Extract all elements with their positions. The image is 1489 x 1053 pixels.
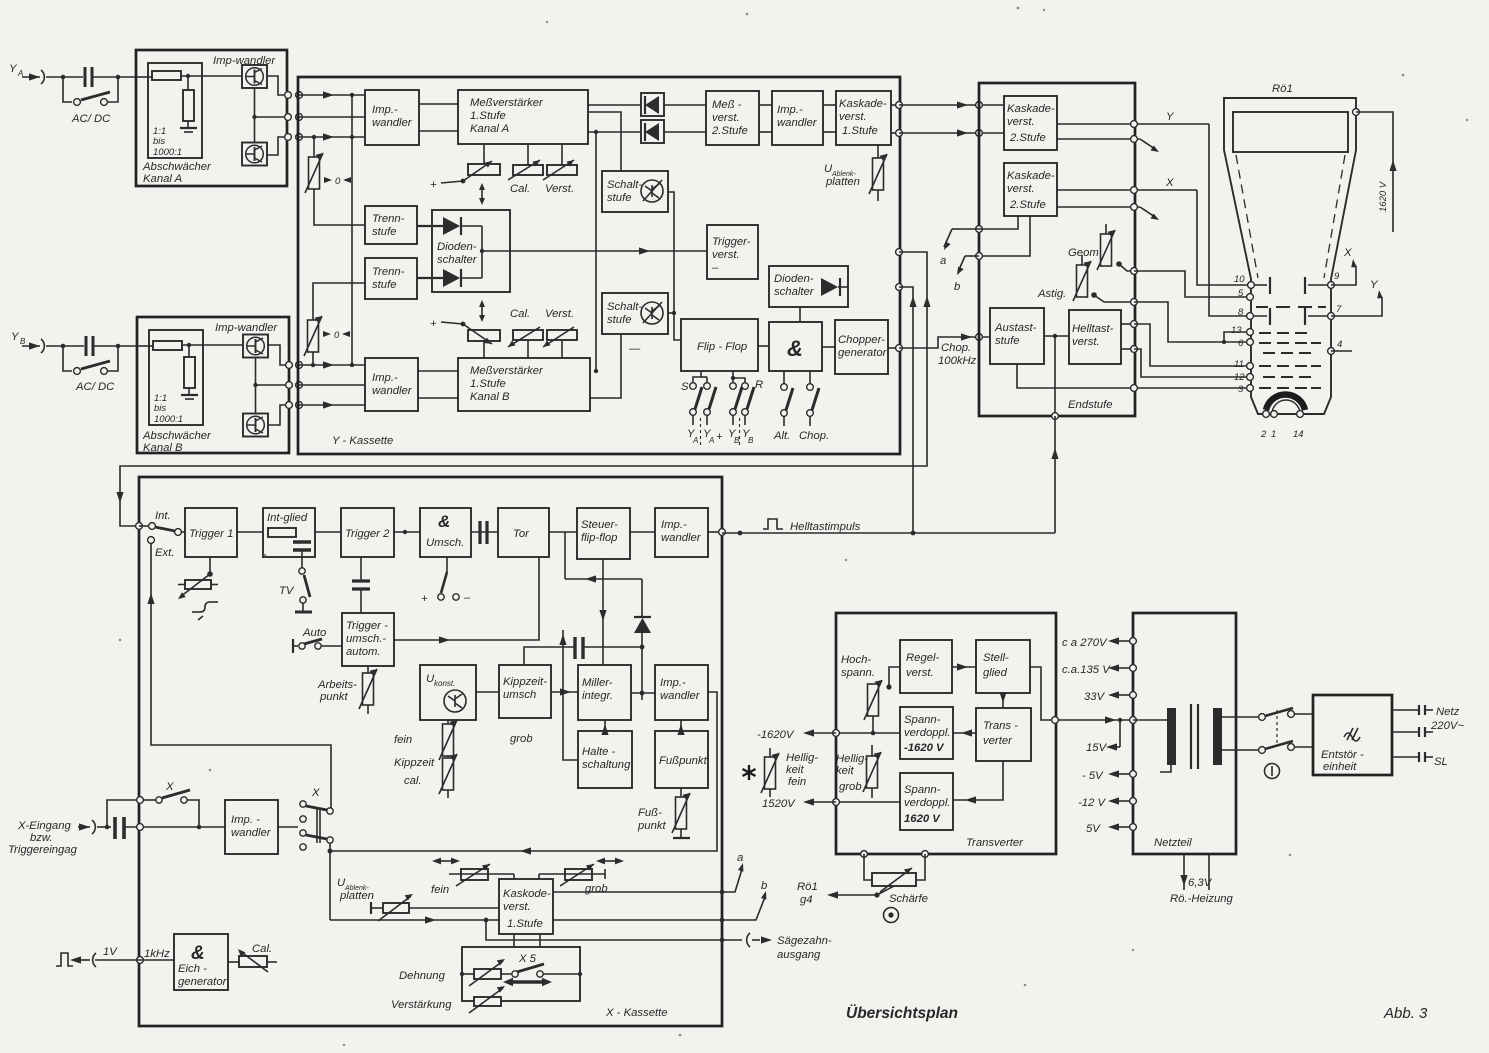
svg-text:Spann-: Spann- [904,714,941,726]
svg-text:8: 8 [1238,307,1244,318]
svg-text:10: 10 [1234,274,1245,285]
svg-text:wandler: wandler [777,117,818,129]
svg-text:punkt: punkt [319,691,348,703]
svg-text:X-Eingang: X-Eingang [17,820,71,832]
svg-text:verst.: verst. [1007,183,1035,195]
svg-text:grob: grob [839,781,862,793]
svg-text:integr.: integr. [582,690,613,702]
svg-text:–: – [711,262,719,274]
svg-text:Trigger 1: Trigger 1 [189,528,233,540]
svg-text:bis: bis [154,403,166,414]
svg-text:Hellig-: Hellig- [786,752,818,764]
svg-text:Steuer-: Steuer- [581,519,618,531]
svg-text:verst.: verst. [1072,336,1100,348]
svg-text:Cal.: Cal. [252,943,272,955]
svg-text:X: X [165,781,174,793]
svg-text:Dehnung: Dehnung [399,970,446,982]
svg-text:5V: 5V [1086,823,1101,835]
svg-text:Abschwächer: Abschwächer [142,430,212,442]
svg-text:Umsch.: Umsch. [426,537,464,549]
svg-text:Dioden-: Dioden- [774,273,814,285]
svg-text:Imp.-: Imp.- [372,104,398,116]
svg-text:Helltastimpuls: Helltastimpuls [790,521,861,533]
svg-text:g4: g4 [800,894,813,906]
svg-text:Alt.: Alt. [773,430,790,442]
svg-text:Kaskade-: Kaskade- [839,98,887,110]
svg-text:6,3V: 6,3V [1188,877,1213,889]
svg-text:flip-flop: flip-flop [581,532,617,544]
svg-text:Rö.-Heizung: Rö.-Heizung [1170,893,1234,905]
svg-text:verdoppl.: verdoppl. [904,797,950,809]
svg-text:Netz: Netz [1436,706,1460,718]
svg-text:verst.: verst. [906,667,934,679]
svg-text:1620 V: 1620 V [1378,180,1389,212]
svg-text:glied: glied [983,667,1008,679]
svg-text:Chop.: Chop. [799,430,829,442]
svg-text:c a 270V: c a 270V [1062,637,1108,649]
svg-text:SL: SL [1434,756,1448,768]
svg-text:verter: verter [983,735,1013,747]
svg-text:platten: platten [825,176,860,188]
svg-text:Helltast-: Helltast- [1072,323,1114,335]
svg-text:X 5: X 5 [518,953,537,965]
svg-text:1520V: 1520V [762,798,796,810]
svg-text:Übersichtsplan: Übersichtsplan [846,1005,958,1022]
svg-text:&: & [787,336,803,361]
svg-text:Auto: Auto [302,627,326,639]
svg-text:platten: platten [339,890,374,902]
svg-text:&: & [191,943,205,964]
svg-text:12: 12 [1234,372,1245,383]
svg-text:Geom: Geom [1068,247,1099,259]
svg-text:Halte -: Halte - [582,746,616,758]
svg-text:Abschwächer: Abschwächer [142,161,212,173]
svg-text:Astig.: Astig. [1037,288,1066,300]
svg-text:Verst.: Verst. [545,308,574,320]
svg-text:R: R [755,379,763,391]
svg-text:Tor: Tor [513,528,530,540]
svg-text:stufe: stufe [995,335,1020,347]
svg-text:konst.: konst. [434,679,455,688]
svg-text:Trenn-: Trenn- [372,213,405,225]
svg-text:spann.: spann. [841,667,875,679]
svg-text:2.Stufe: 2.Stufe [711,125,748,137]
svg-text:Rö1: Rö1 [1272,83,1293,95]
svg-text:Cal.: Cal. [510,183,530,195]
svg-text:Chop.: Chop. [941,342,971,354]
svg-text:–: – [463,592,471,604]
svg-text:schalter: schalter [774,286,815,298]
svg-text:Rö1: Rö1 [797,881,818,893]
svg-text:A: A [708,436,714,445]
svg-text:generator: generator [178,976,228,988]
svg-text:X - Kassette: X - Kassette [605,1007,668,1019]
svg-text:bzw.: bzw. [30,832,53,844]
svg-text:autom.: autom. [346,646,381,658]
svg-text:Miller-: Miller- [582,677,613,689]
svg-text:AC/ DC: AC/ DC [75,381,115,393]
svg-text:c.a.135 V: c.a.135 V [1062,664,1111,676]
svg-text:grob: grob [510,733,533,745]
svg-text:stufe: stufe [607,192,632,204]
svg-text:Kanal A: Kanal A [470,123,509,135]
svg-text:Imp.-: Imp.- [372,372,398,384]
svg-text:umsch.-: umsch.- [346,633,386,645]
svg-text:X: X [1343,247,1352,259]
svg-text:Meßverstärker: Meßverstärker [470,97,544,109]
svg-text:Kippzeit: Kippzeit [394,757,435,769]
svg-text:verst.: verst. [712,112,740,124]
svg-text:9: 9 [1334,271,1340,282]
svg-text:Regel-: Regel- [906,652,940,664]
svg-text:punkt: punkt [637,820,666,832]
svg-text:schaltung: schaltung [582,759,631,771]
svg-text:Eich -: Eich - [178,963,207,975]
svg-text:wandler: wandler [231,827,272,839]
svg-text:Imp. -: Imp. - [231,814,260,826]
svg-text:wandler: wandler [372,117,413,129]
svg-text:-1620 V: -1620 V [904,742,945,754]
svg-text:keit: keit [836,765,854,777]
svg-text:a: a [940,255,946,267]
svg-text:a: a [737,852,743,864]
svg-text:b: b [954,281,960,293]
svg-text:Netzteil: Netzteil [1154,837,1192,849]
svg-text:fein: fein [788,776,806,788]
svg-text:14: 14 [1293,429,1304,440]
svg-text:Cal.: Cal. [510,308,530,320]
svg-text:Abb. 3: Abb. 3 [1383,1005,1428,1022]
svg-text:1.Stufe: 1.Stufe [470,110,506,122]
svg-text:Schalt-: Schalt- [607,301,642,313]
svg-text:Meßverstärker: Meßverstärker [470,365,544,377]
svg-text:Kaskode-: Kaskode- [503,888,551,900]
svg-text:0: 0 [335,176,341,187]
svg-text:1: 1 [1271,429,1276,440]
svg-text:Kaskade-: Kaskade- [1007,103,1055,115]
svg-text:Imp-wandler: Imp-wandler [215,322,278,334]
svg-text:+: + [421,593,428,605]
svg-text:Hellig-: Hellig- [836,753,868,765]
svg-text:Kanal A: Kanal A [143,173,182,185]
svg-text:33V: 33V [1084,691,1106,703]
svg-text:wandler: wandler [661,532,702,544]
svg-text:Imp.-: Imp.- [660,677,686,689]
svg-text:A: A [692,436,698,445]
svg-text:Kanal B: Kanal B [143,442,183,454]
svg-text:1.Stufe: 1.Stufe [470,378,506,390]
svg-text:Int.: Int. [155,510,171,522]
svg-text:Ext.: Ext. [155,547,174,559]
svg-text:wandler: wandler [660,690,701,702]
svg-text:1kHz: 1kHz [144,948,170,960]
svg-text:Schalt-: Schalt- [607,179,642,191]
svg-text:b: b [761,880,767,892]
svg-text:-1620V: -1620V [757,729,795,741]
svg-text:Flip - Flop: Flip - Flop [697,341,747,353]
svg-text:Int-glied: Int-glied [267,512,308,524]
svg-text:Trans -: Trans - [983,720,1018,732]
svg-text:Endstufe: Endstufe [1068,399,1113,411]
svg-text:11: 11 [1234,359,1244,370]
svg-text:2: 2 [1260,429,1267,440]
svg-text:7: 7 [1336,304,1342,315]
svg-text:3: 3 [1238,384,1244,395]
svg-text:Dioden-: Dioden- [437,241,477,253]
svg-text:Verstärkung: Verstärkung [391,999,452,1011]
svg-text:1000:1: 1000:1 [153,147,182,158]
svg-text:Chopper-: Chopper- [838,334,885,346]
svg-text:Arbeits-: Arbeits- [317,679,357,691]
svg-text:—: — [628,343,641,355]
svg-text:2.Stufe: 2.Stufe [1009,199,1046,211]
svg-text:1620 V: 1620 V [904,813,941,825]
svg-text:fein: fein [394,734,412,746]
svg-text:Imp.-: Imp.- [777,104,803,116]
svg-text:TV: TV [279,585,295,597]
svg-text:15V: 15V [1086,742,1108,754]
svg-text:B: B [748,436,754,445]
svg-text:fein: fein [431,884,449,896]
svg-text:grob: grob [585,883,608,895]
svg-text:Schärfe: Schärfe [889,893,928,905]
svg-text:Trigger -: Trigger - [346,620,388,632]
svg-text:Y - Kassette: Y - Kassette [332,435,393,447]
svg-text:einheit: einheit [1323,761,1357,773]
svg-text:- 5V: - 5V [1082,770,1104,782]
svg-text:5: 5 [1238,288,1244,299]
svg-text:verdoppl.: verdoppl. [904,727,950,739]
svg-text:Meß -: Meß - [712,99,742,111]
svg-text:B: B [734,436,740,445]
svg-text:X: X [311,787,320,799]
svg-text:220V~: 220V~ [1430,720,1464,732]
svg-text:Kaskade-: Kaskade- [1007,170,1055,182]
svg-text:verst.: verst. [1007,116,1035,128]
svg-text:Trenn-: Trenn- [372,266,405,278]
svg-text:S: S [681,381,689,393]
svg-text:Trigger-: Trigger- [712,236,751,248]
svg-text:0: 0 [334,330,340,341]
svg-text:schalter: schalter [437,254,478,266]
svg-text:-12 V: -12 V [1078,797,1106,809]
svg-text:Stell-: Stell- [983,652,1009,664]
svg-text:bis: bis [153,136,165,147]
svg-text:1.Stufe: 1.Stufe [507,918,543,930]
svg-text:+: + [716,431,723,443]
svg-text:verst.: verst. [839,111,867,123]
svg-text:ausgang: ausgang [777,949,821,961]
svg-text:+: + [430,318,437,330]
svg-text:Spann-: Spann- [904,784,941,796]
svg-text:1V: 1V [103,946,118,958]
svg-text:Kippzeit-: Kippzeit- [503,676,547,688]
svg-text:verst.: verst. [712,249,740,261]
svg-text:stufe: stufe [372,279,397,291]
svg-text:Trigger 2: Trigger 2 [345,528,390,540]
svg-text:Austast-: Austast- [994,322,1037,334]
svg-text:Fuß-: Fuß- [638,807,662,819]
svg-text:1000:1: 1000:1 [154,414,183,425]
svg-text:Sägezahn-: Sägezahn- [777,935,832,947]
svg-text:cal.: cal. [404,775,422,787]
svg-text:X: X [1165,177,1174,189]
svg-text:&: & [438,512,450,531]
svg-text:Imp.-: Imp.- [661,519,687,531]
svg-text:stufe: stufe [607,314,632,326]
svg-text:13: 13 [1231,325,1242,336]
svg-text:Transverter: Transverter [966,837,1024,849]
svg-text:Entstör -: Entstör - [1321,749,1364,761]
svg-text:2.Stufe: 2.Stufe [1009,132,1046,144]
svg-text:verst.: verst. [503,901,531,913]
svg-text:Verst.: Verst. [545,183,574,195]
svg-text:wandler: wandler [372,385,413,397]
svg-text:100kHz: 100kHz [938,355,977,367]
svg-text:6: 6 [1238,338,1244,349]
svg-text:4: 4 [1337,339,1342,350]
svg-text:Hoch-: Hoch- [841,654,871,666]
svg-text:Kanal B: Kanal B [470,391,510,403]
svg-text:1.Stufe: 1.Stufe [842,125,878,137]
svg-text:AC/ DC: AC/ DC [71,113,111,125]
svg-text:Triggereingag: Triggereingag [8,844,78,856]
svg-text:generator: generator [838,347,888,359]
svg-text:stufe: stufe [372,226,397,238]
svg-text:keit: keit [786,764,804,776]
svg-text:umsch: umsch [503,689,536,701]
svg-text:+: + [430,179,437,191]
svg-text:B: B [20,337,26,346]
svg-text:Fußpunkt: Fußpunkt [659,755,708,767]
